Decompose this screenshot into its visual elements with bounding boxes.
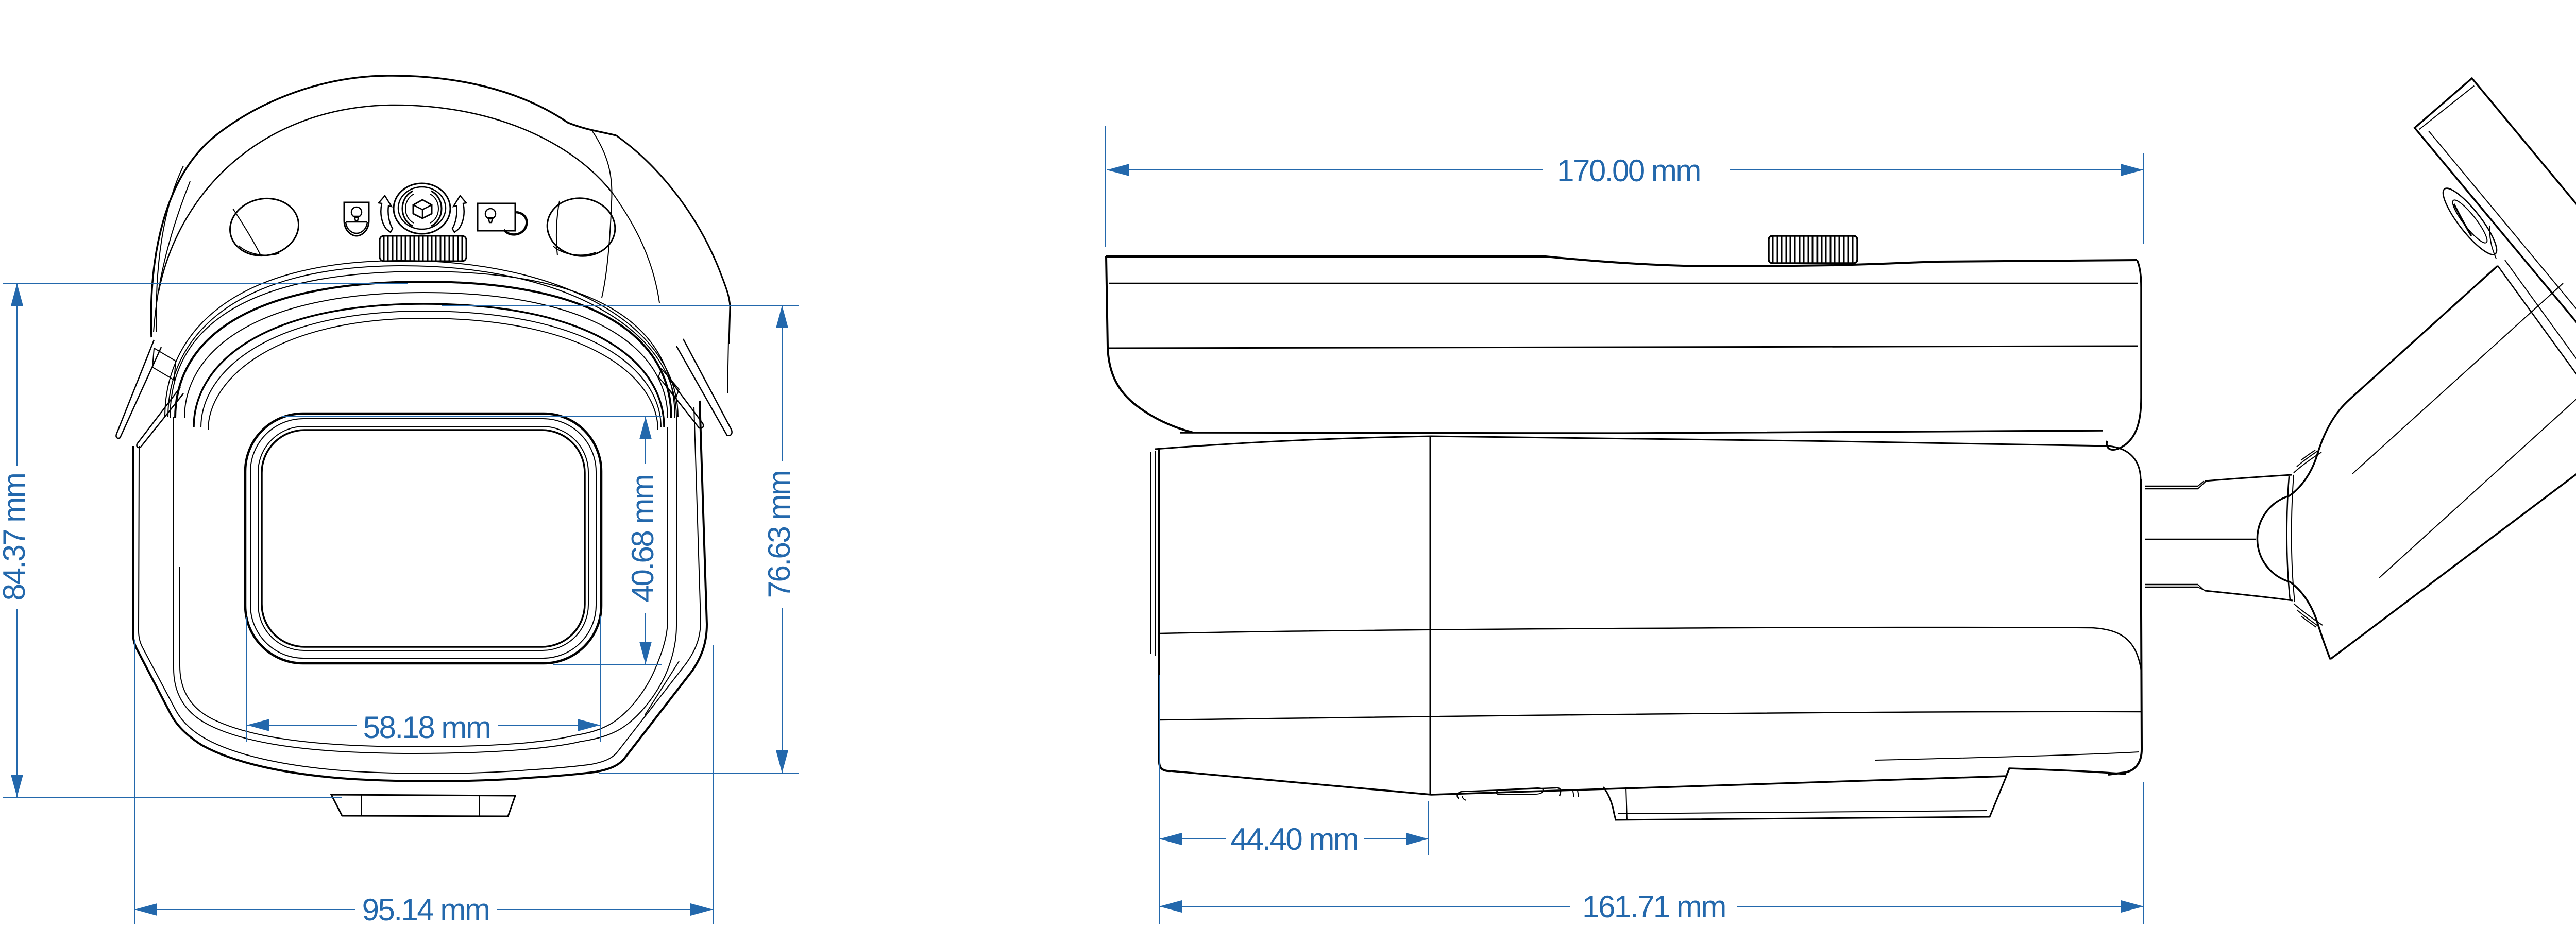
- svg-text:40.68 mm: 40.68 mm: [625, 475, 660, 603]
- svg-text:95.14 mm: 95.14 mm: [362, 892, 489, 927]
- svg-text:161.71 mm: 161.71 mm: [1582, 889, 1725, 924]
- svg-text:84.37 mm: 84.37 mm: [0, 474, 31, 601]
- svg-text:58.18 mm: 58.18 mm: [363, 710, 490, 745]
- svg-text:44.40 mm: 44.40 mm: [1231, 822, 1358, 856]
- svg-text:76.63 mm: 76.63 mm: [762, 471, 796, 598]
- svg-text:170.00 mm: 170.00 mm: [1557, 153, 1700, 188]
